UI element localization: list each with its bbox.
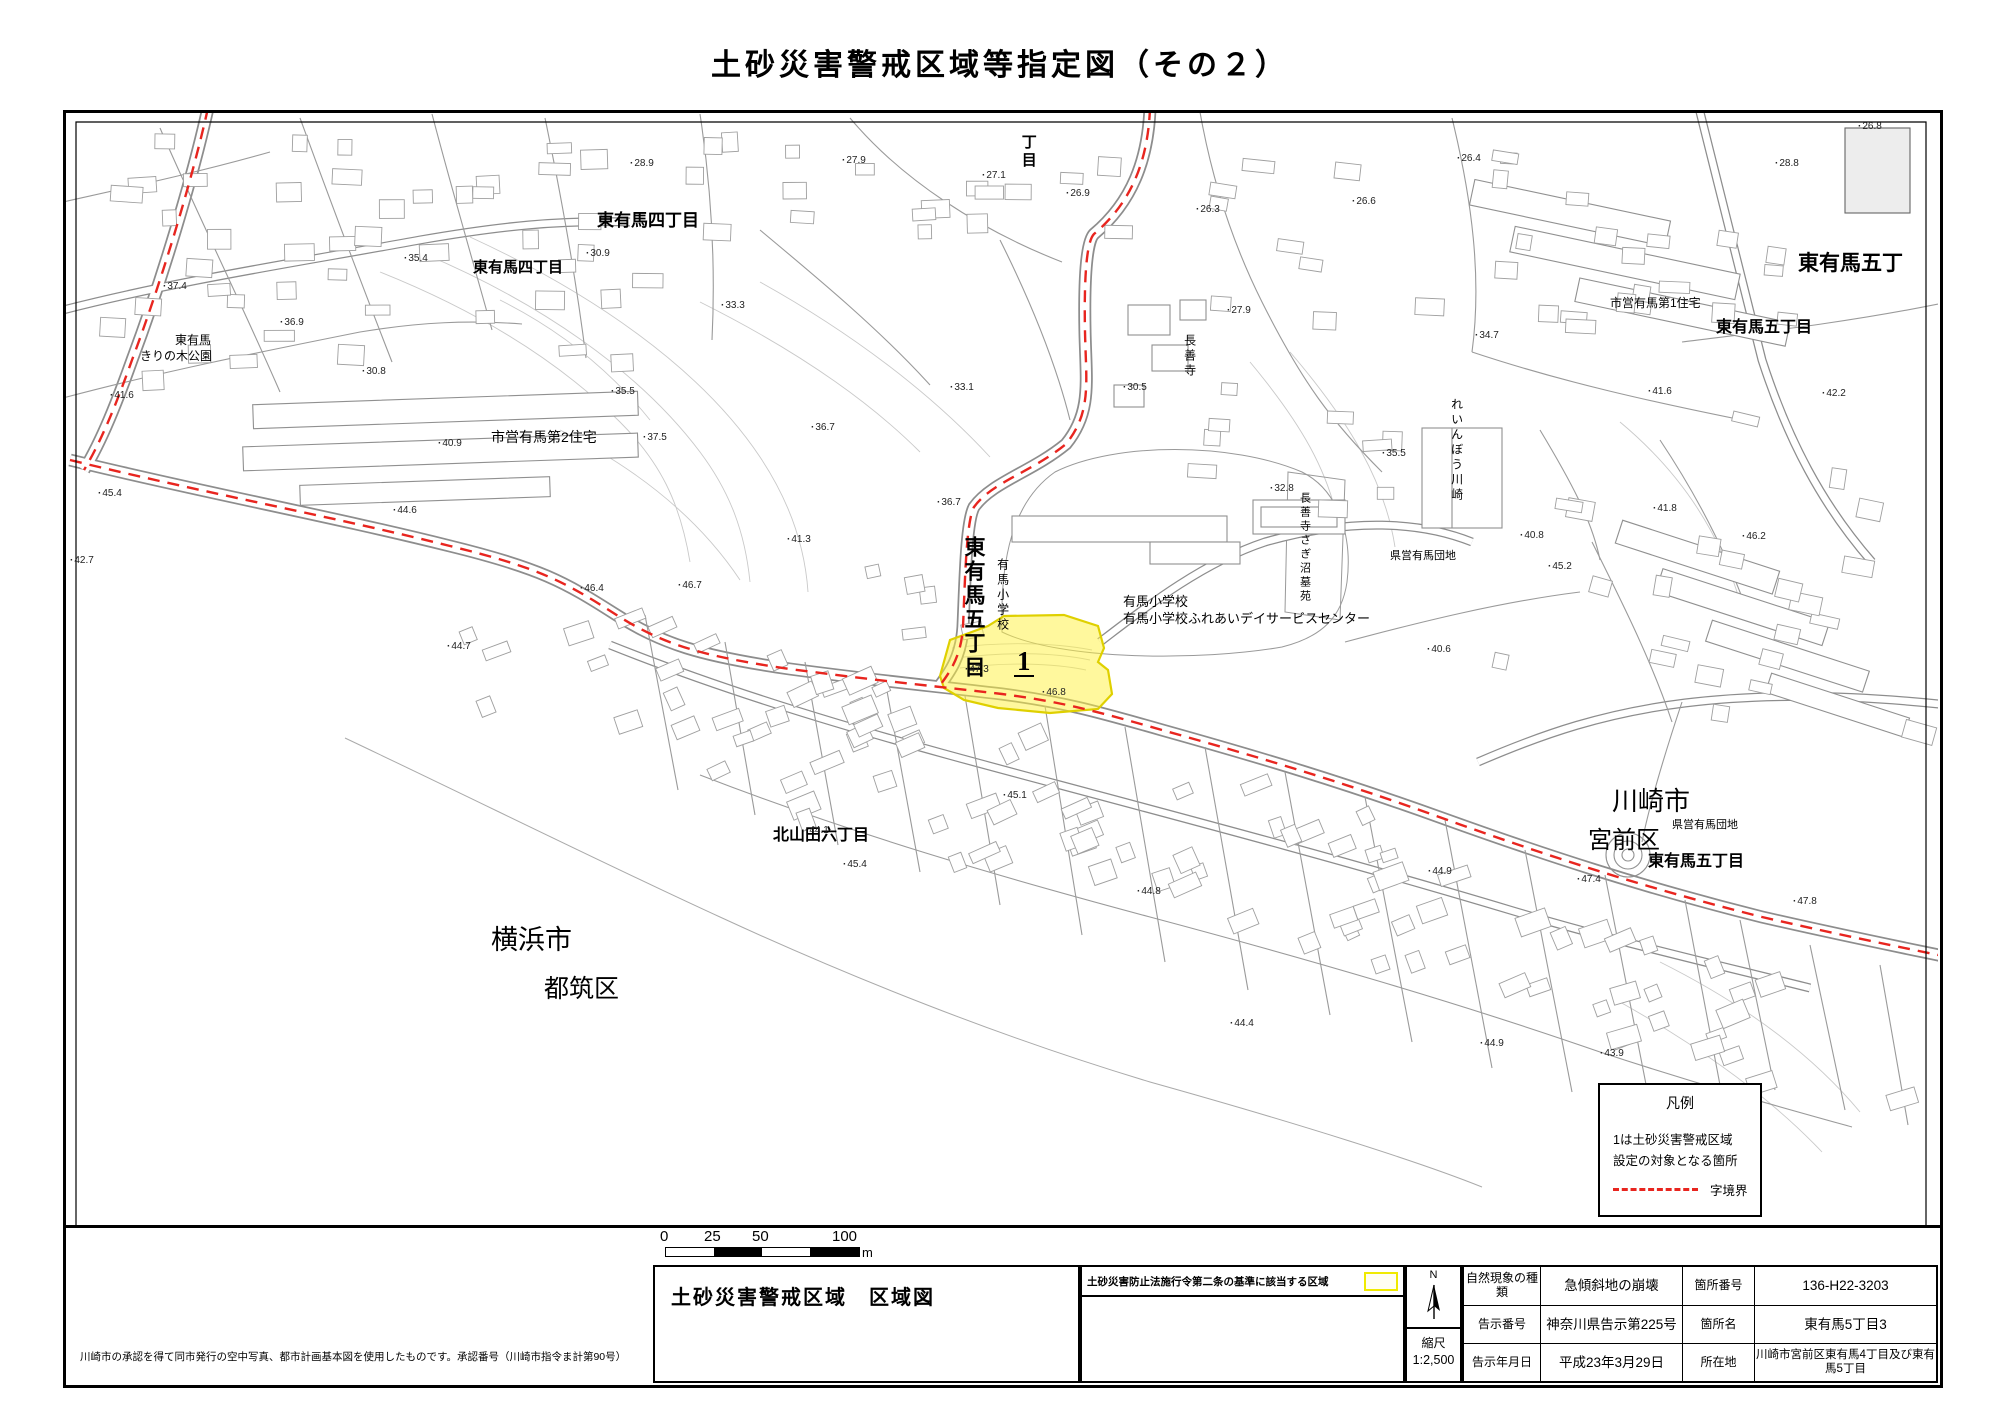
scale-tick-100: 100 [832,1228,857,1245]
table-value: 川崎市宮前区東有馬4丁目及び東有馬5丁目 [1754,1343,1936,1381]
source-note: 川崎市の承認を得て同市発行の空中写真、都市計画基本図を使用したものです。承認番号… [80,1349,640,1364]
table-key: 自然現象の種類 [1464,1267,1540,1305]
scale-tick-0: 0 [660,1228,668,1245]
sheet-title: 土砂災害警戒区域 区域図 [671,1281,1078,1310]
table-value: 神奈川県告示第225号 [1540,1305,1682,1343]
table-value: 急傾斜地の崩壊 [1540,1267,1682,1305]
scale-bar: 0 25 50 100 m [640,1228,900,1264]
warning-area-swatch [1364,1272,1398,1291]
table-value: 平成23年3月29日 [1540,1343,1682,1381]
table-key: 箇所番号 [1682,1267,1754,1305]
criteria-box: 土砂災害防止法施行令第二条の基準に該当する区域 [1080,1265,1405,1383]
scale-value: 1:2,500 [1407,1352,1460,1370]
scale-tick-50: 50 [752,1228,769,1245]
criteria-label: 土砂災害防止法施行令第二条の基準に該当する区域 [1082,1274,1364,1289]
scale-unit: m [862,1245,873,1260]
compass-scale-box: N 縮尺 1:2,500 [1405,1265,1462,1383]
table-value: 136-H22-3203 [1754,1267,1936,1305]
scale-tick-25: 25 [704,1228,721,1245]
hazard-map-sheet: 土砂災害警戒区域等指定図（その２） [0,0,2000,1414]
table-key: 告示年月日 [1464,1343,1540,1381]
info-table: 自然現象の種類 急傾斜地の崩壊 箇所番号 136-H22-3203 告示番号 神… [1462,1265,1938,1383]
table-value: 東有馬5丁目3 [1754,1305,1936,1343]
north-label: N [1407,1267,1460,1281]
sheet-title-box: 土砂災害警戒区域 区域図 川崎市の承認を得て同市発行の空中写真、都市計画基本図を… [653,1265,1080,1383]
sheet-frame [63,110,1943,1388]
north-arrow-icon [1424,1281,1444,1321]
table-key: 所在地 [1682,1343,1754,1381]
table-key: 告示番号 [1464,1305,1540,1343]
scale-bar-segments [665,1247,860,1257]
scale-label: 縮尺 [1407,1335,1460,1352]
table-key: 箇所名 [1682,1305,1754,1343]
